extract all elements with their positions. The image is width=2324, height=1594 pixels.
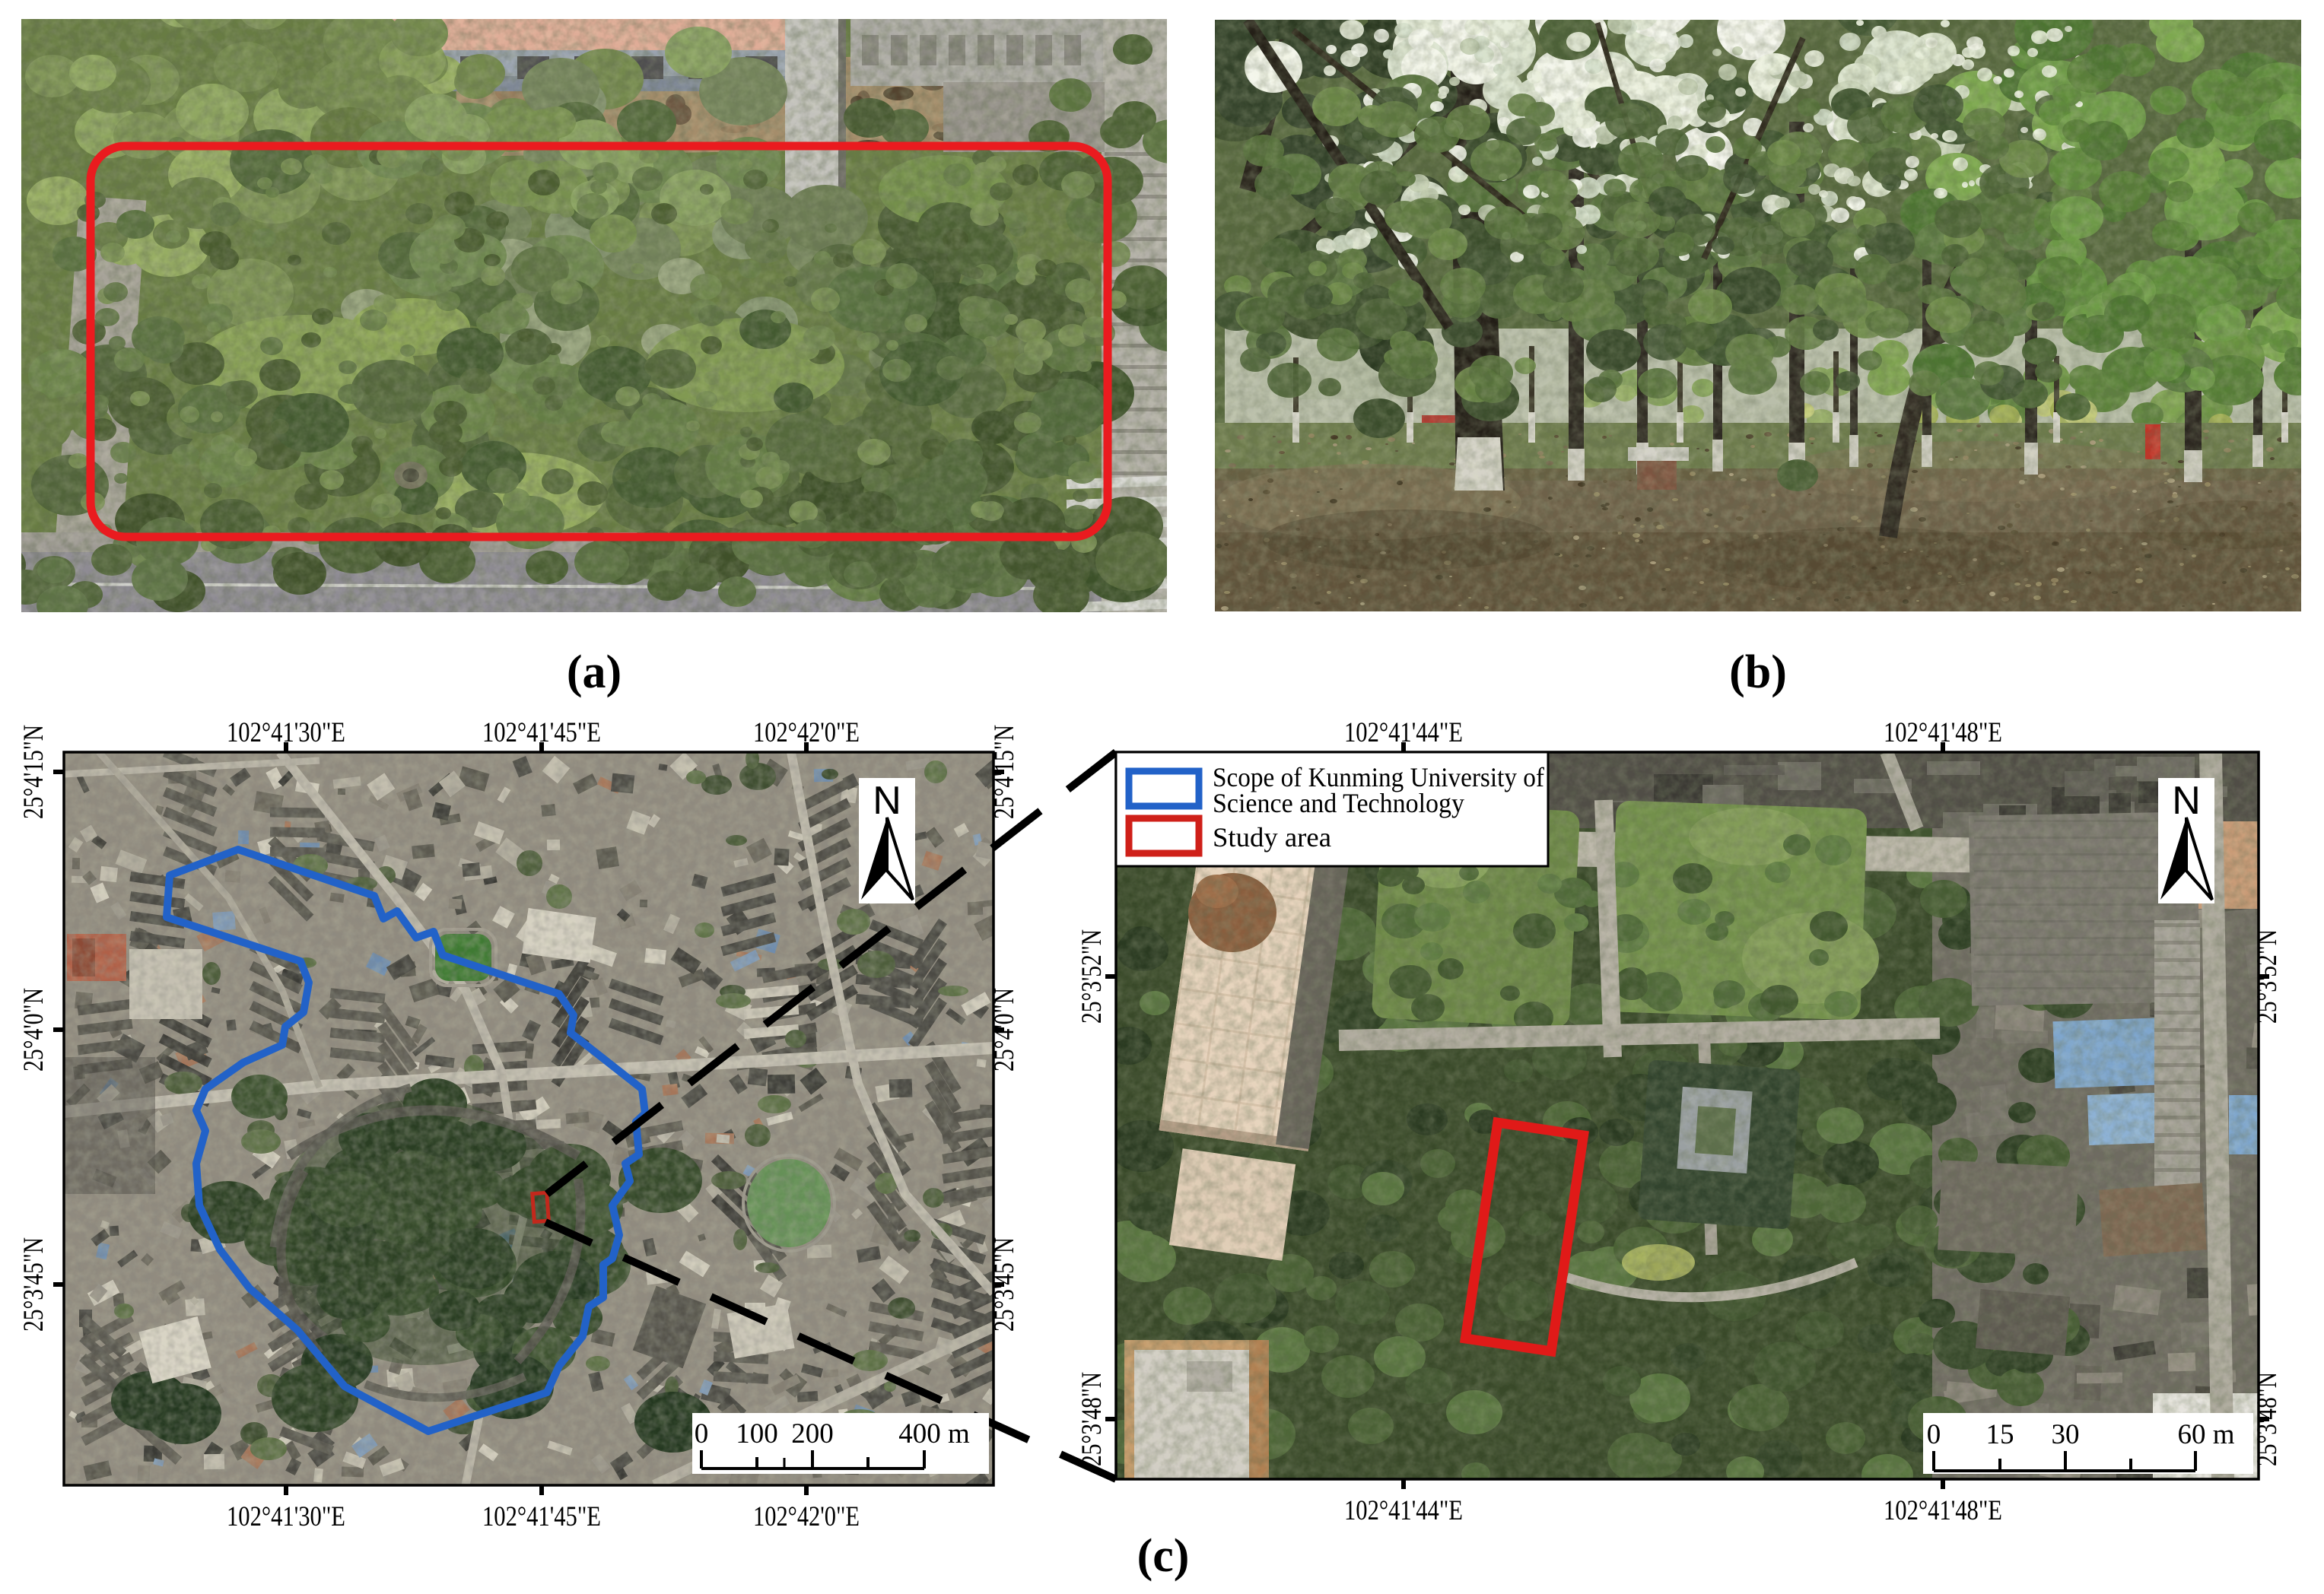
svg-text:Science and Technology: Science and Technology xyxy=(1213,788,1464,818)
svg-text:200: 200 xyxy=(791,1418,834,1450)
svg-text:(c): (c) xyxy=(1137,1530,1190,1582)
svg-text:N: N xyxy=(2172,779,2201,823)
svg-text:100: 100 xyxy=(736,1418,778,1450)
svg-text:25°4'15"N: 25°4'15"N xyxy=(18,725,49,819)
svg-text:N: N xyxy=(873,779,901,823)
svg-text:102°42'0"E: 102°42'0"E xyxy=(753,1501,860,1532)
svg-text:15: 15 xyxy=(1986,1419,2014,1450)
svg-text:102°41'45"E: 102°41'45"E xyxy=(482,1501,601,1532)
svg-text:0: 0 xyxy=(1927,1419,1941,1450)
svg-text:102°41'44"E: 102°41'44"E xyxy=(1344,1495,1463,1526)
svg-text:60 m: 60 m xyxy=(2177,1419,2234,1450)
svg-text:102°41'30"E: 102°41'30"E xyxy=(227,1501,345,1532)
svg-text:25°4'0"N: 25°4'0"N xyxy=(18,988,49,1072)
svg-text:(a): (a) xyxy=(567,646,622,698)
svg-text:30: 30 xyxy=(2052,1419,2080,1450)
svg-text:102°41'48"E: 102°41'48"E xyxy=(1884,1495,2002,1526)
svg-text:400 m: 400 m xyxy=(898,1418,970,1450)
svg-text:25°3'52"N: 25°3'52"N xyxy=(1076,929,1108,1024)
svg-text:25°3'45"N: 25°3'45"N xyxy=(18,1237,49,1332)
svg-text:0: 0 xyxy=(695,1418,709,1450)
svg-text:25°3'48"N: 25°3'48"N xyxy=(1076,1372,1108,1466)
svg-text:Study area: Study area xyxy=(1213,822,1331,853)
svg-text:(b): (b) xyxy=(1729,646,1787,698)
